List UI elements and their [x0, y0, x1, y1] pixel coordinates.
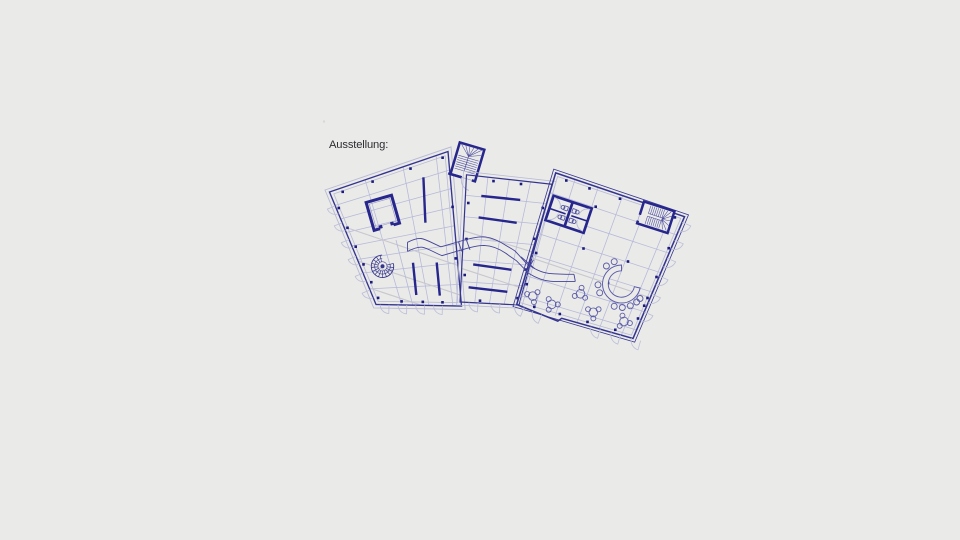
svg-text:Ausstellung:: Ausstellung: — [329, 139, 388, 151]
